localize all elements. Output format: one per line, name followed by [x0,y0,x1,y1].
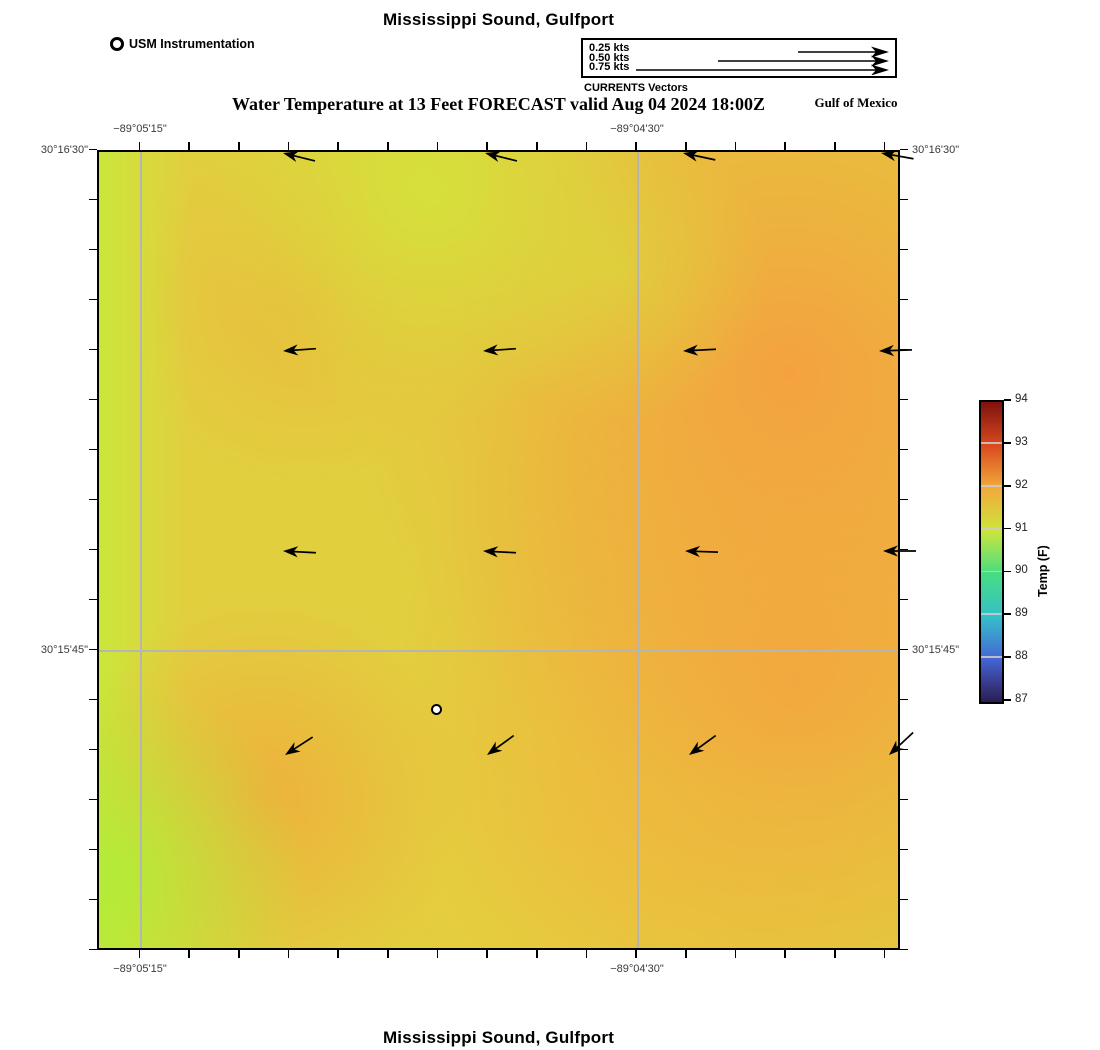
axis-tick [139,950,141,958]
colorbar-tick [1004,571,1011,573]
temperature-heatmap [99,152,898,948]
axis-tick [89,699,97,701]
axis-tick [900,199,908,201]
axis-tick [900,899,908,901]
x-axis-label-top-right: −89°04'30" [610,123,664,135]
axis-tick [834,142,836,150]
colorbar-tick [1004,656,1011,658]
axis-tick [900,849,908,851]
axis-tick [884,142,886,150]
figure-title-top: Mississippi Sound, Gulfport [97,10,900,30]
axis-tick [89,549,97,551]
axis-tick [735,142,737,150]
axis-tick [188,950,190,958]
colorbar-tick-label: 93 [1015,436,1028,448]
axis-tick [89,849,97,851]
colorbar-tick-label: 88 [1015,650,1028,662]
currents-caption: CURRENTS Vectors [584,82,688,94]
axis-tick [89,299,97,301]
axis-tick [536,950,538,958]
colorbar-tick [1004,399,1011,401]
legend-vector-icons [583,40,894,75]
axis-tick [900,549,908,551]
colorbar-tick-label: 90 [1015,564,1028,576]
axis-tick [900,249,908,251]
axis-tick [437,142,439,150]
axis-tick [89,249,97,251]
colorbar-tick [1004,442,1011,444]
axis-tick [834,950,836,958]
figure-subtitle: Water Temperature at 13 Feet FORECAST va… [97,94,900,115]
axis-tick [337,950,339,958]
axis-tick [139,142,141,150]
axis-tick [685,950,687,958]
colorbar-tick-label: 94 [1015,393,1028,405]
axis-tick [900,349,908,351]
colorbar-tick-label: 92 [1015,479,1028,491]
axis-tick [89,499,97,501]
axis-tick [89,349,97,351]
axis-tick [884,950,886,958]
x-axis-label-top-left: −89°05'15" [113,123,167,135]
axis-tick [89,799,97,801]
colorbar-tick-label: 91 [1015,522,1028,534]
axis-tick [89,599,97,601]
axis-tick [635,950,637,958]
station-marker-icon [110,37,124,51]
colorbar [979,400,1004,704]
axis-tick [89,649,97,651]
colorbar-gridline [981,613,1002,615]
axis-tick [89,749,97,751]
axis-tick [900,749,908,751]
axis-tick [288,142,290,150]
colorbar-tick [1004,699,1011,701]
axis-tick [900,649,908,651]
axis-tick [486,950,488,958]
axis-tick [387,950,389,958]
axis-tick [89,899,97,901]
usm-instrumentation-legend: USM Instrumentation [110,37,255,51]
axis-tick [685,142,687,150]
axis-tick [900,149,908,151]
axis-tick [238,142,240,150]
axis-tick [900,449,908,451]
y-axis-label-left-top: 30°16'30" [0,144,88,156]
gridline-vertical [140,152,142,948]
y-axis-label-right-bottom: 30°15'45" [912,644,959,656]
axis-tick [900,599,908,601]
x-axis-label-bottom-right: −89°04'30" [610,963,664,975]
axis-tick [900,699,908,701]
axis-tick [288,950,290,958]
axis-tick [900,499,908,501]
axis-tick [735,950,737,958]
gridline-vertical [637,152,639,948]
y-axis-label-right-top: 30°16'30" [912,144,959,156]
figure-title-bottom: Mississippi Sound, Gulfport [97,1028,900,1048]
axis-tick [900,399,908,401]
axis-tick [536,142,538,150]
axis-tick [188,142,190,150]
x-axis-label-bottom-left: −89°05'15" [113,963,167,975]
axis-tick [784,950,786,958]
axis-tick [784,142,786,150]
axis-tick [900,799,908,801]
colorbar-gridline [981,571,1002,573]
temperature-map [97,150,900,950]
axis-tick [89,949,97,951]
axis-tick [89,149,97,151]
colorbar-tick [1004,485,1011,487]
axis-tick [635,142,637,150]
colorbar-tick-label: 87 [1015,693,1028,705]
colorbar-gridline [981,528,1002,530]
gridline-horizontal [99,650,898,652]
colorbar-tick-label: 89 [1015,607,1028,619]
axis-tick [437,950,439,958]
axis-tick [387,142,389,150]
axis-tick [486,142,488,150]
axis-tick [337,142,339,150]
colorbar-tick [1004,613,1011,615]
currents-legend-box: 0.25 kts 0.50 kts 0.75 kts [581,38,897,78]
axis-tick [900,299,908,301]
axis-tick [238,950,240,958]
axis-tick [89,199,97,201]
axis-tick [586,950,588,958]
colorbar-gridline [981,442,1002,444]
colorbar-title: Temp (F) [1036,505,1050,597]
axis-tick [89,449,97,451]
colorbar-tick [1004,528,1011,530]
usm-instrumentation-label: USM Instrumentation [129,37,255,51]
colorbar-gridline [981,485,1002,487]
colorbar-gridline [981,656,1002,658]
forecast-figure: Mississippi Sound, Gulfport USM Instrume… [0,0,1100,1050]
axis-tick [586,142,588,150]
axis-tick [89,399,97,401]
y-axis-label-left-bottom: 30°15'45" [0,644,88,656]
axis-tick [900,949,908,951]
station-marker [431,704,442,715]
